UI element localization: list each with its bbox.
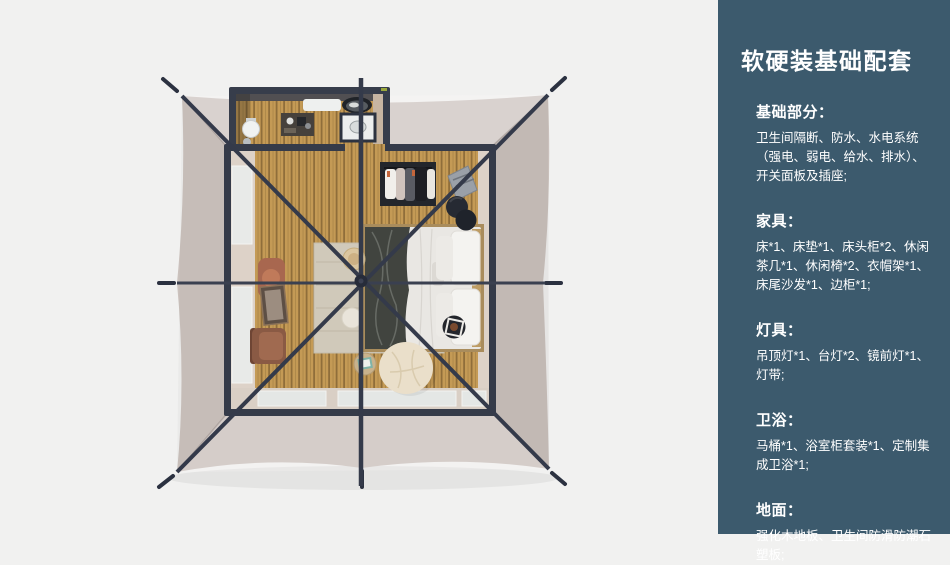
spec-section-bathroom: 卫浴： 马桶*1、浴室柜套装*1、定制集 成卫浴*1; xyxy=(756,409,942,475)
section-body: 吊顶灯*1、台灯*2、镜前灯*1、 灯带; xyxy=(756,347,942,385)
section-heading: 灯具： xyxy=(756,319,942,340)
left-window-upper xyxy=(232,166,252,244)
vanity-desk xyxy=(281,113,314,136)
clothes-rack xyxy=(380,162,436,206)
pillow-top xyxy=(451,231,480,285)
section-body: 马桶*1、浴室柜套装*1、定制集 成卫浴*1; xyxy=(756,437,942,475)
spec-section-lighting: 灯具： 吊顶灯*1、台灯*2、镜前灯*1、 灯带; xyxy=(756,319,942,385)
left-window-lower xyxy=(232,287,252,383)
shower xyxy=(341,114,375,141)
coffee-table xyxy=(354,353,376,375)
bathroom-counter xyxy=(303,99,341,111)
bathroom-doorway xyxy=(345,144,385,154)
bedside-table xyxy=(443,316,466,339)
spec-section-furniture: 家具： 床*1、床垫*1、床头柜*2、休闲 茶几*1、休闲椅*2、衣帽架*1、 … xyxy=(756,210,942,295)
sink xyxy=(342,97,372,113)
section-body: 强化木地板、卫生间防滑防潮石 塑板; xyxy=(756,527,942,565)
section-heading: 地面： xyxy=(756,499,942,520)
section-body: 床*1、床垫*1、床头柜*2、休闲 茶几*1、休闲椅*2、衣帽架*1、 床尾沙发… xyxy=(756,238,942,295)
floorplan-svg xyxy=(0,0,718,534)
center-hub-cap xyxy=(359,279,364,284)
lounge-chair-lower xyxy=(250,328,286,364)
section-heading: 家具： xyxy=(756,210,942,231)
bathroom xyxy=(229,87,390,151)
standing-mirror xyxy=(260,285,288,325)
bed xyxy=(362,224,484,352)
section-body: 卫生间隔断、防水、水电系统 （强电、弱电、给水、排水）、 开关面板及插座; xyxy=(756,129,942,186)
slide-root: 软硬装基础配套 基础部分： 卫生间隔断、防水、水电系统 （强电、弱电、给水、排水… xyxy=(0,0,950,534)
section-heading: 卫浴： xyxy=(756,409,942,430)
spec-section-flooring: 地面： 强化木地板、卫生间防滑防潮石 塑板; xyxy=(756,499,942,565)
sidebar-title: 软硬装基础配套 xyxy=(741,42,942,76)
tent-floorplan-render xyxy=(0,0,718,534)
section-heading: 基础部分： xyxy=(756,101,942,122)
pillow-small-top xyxy=(436,236,453,280)
bottom-glass-center xyxy=(338,391,456,406)
info-sidebar: 软硬装基础配套 基础部分： 卫生间隔断、防水、水电系统 （强电、弱电、给水、排水… xyxy=(718,0,950,534)
spec-section-basics: 基础部分： 卫生间隔断、防水、水电系统 （强电、弱电、给水、排水）、 开关面板及… xyxy=(756,101,942,186)
vent-marker xyxy=(381,88,387,91)
bottom-glass-left xyxy=(258,391,326,406)
